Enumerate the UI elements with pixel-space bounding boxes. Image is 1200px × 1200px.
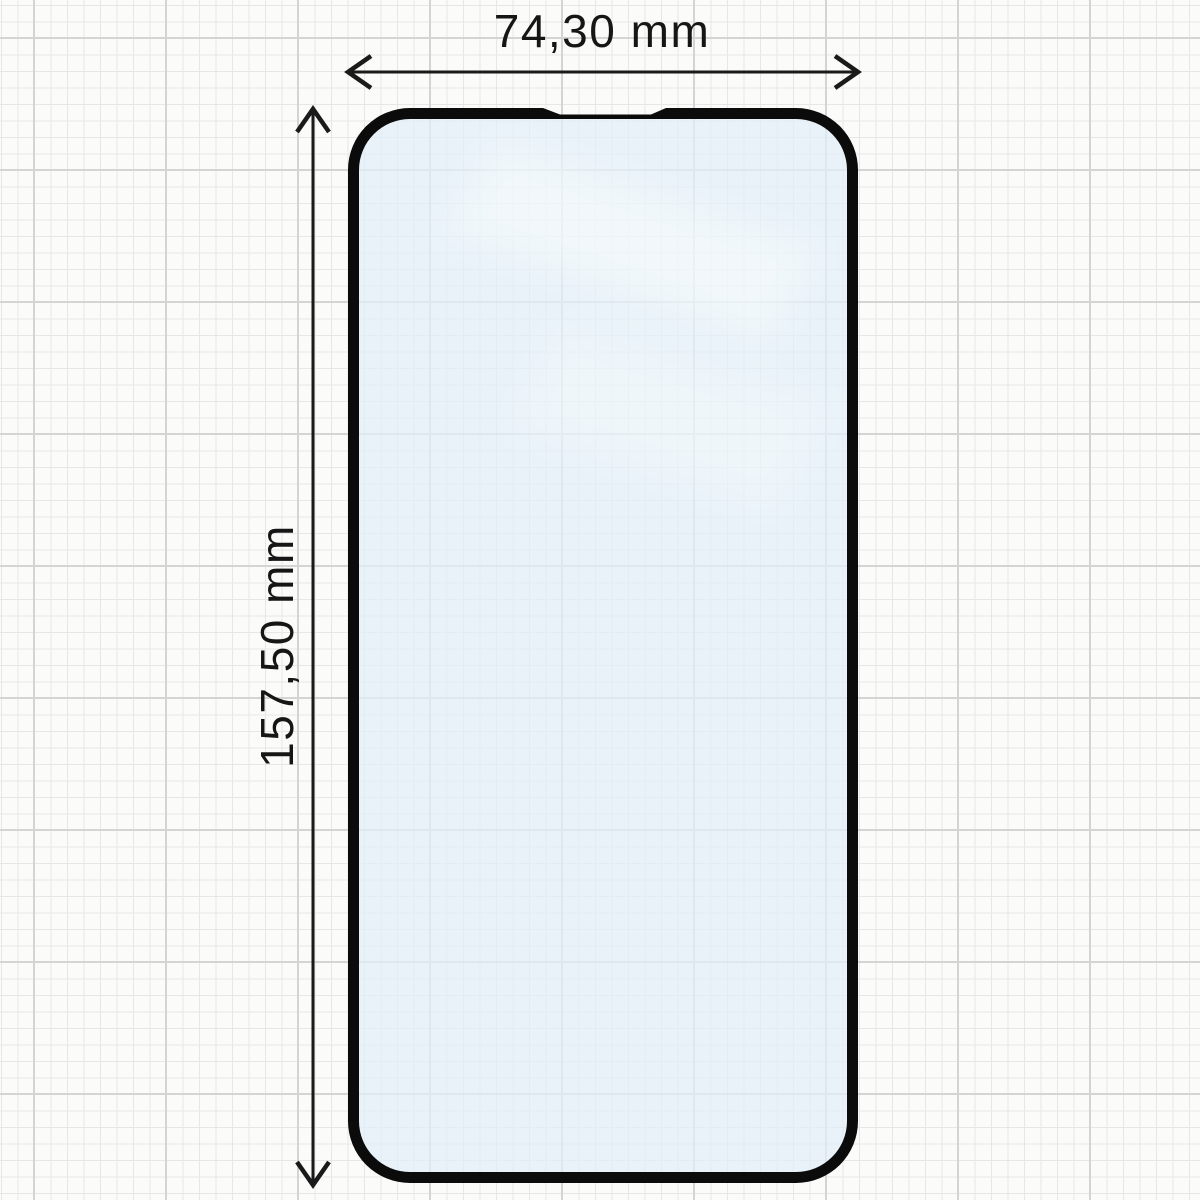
width-dimension-arrow-right-icon: [835, 56, 858, 88]
width-dimension-arrow-left-icon: [348, 56, 371, 88]
height-dimension-label: 157,50 mm: [250, 524, 304, 768]
graph-paper-background: 74,30 mm 157,50 mm: [0, 0, 1200, 1200]
height-dimension-arrow-bottom-icon: [297, 1162, 329, 1185]
width-dimension: [348, 56, 858, 88]
height-dimension-arrow-top-icon: [297, 109, 329, 132]
width-dimension-label: 74,30 mm: [494, 4, 711, 58]
screen-protector-drawing: [348, 108, 858, 1183]
